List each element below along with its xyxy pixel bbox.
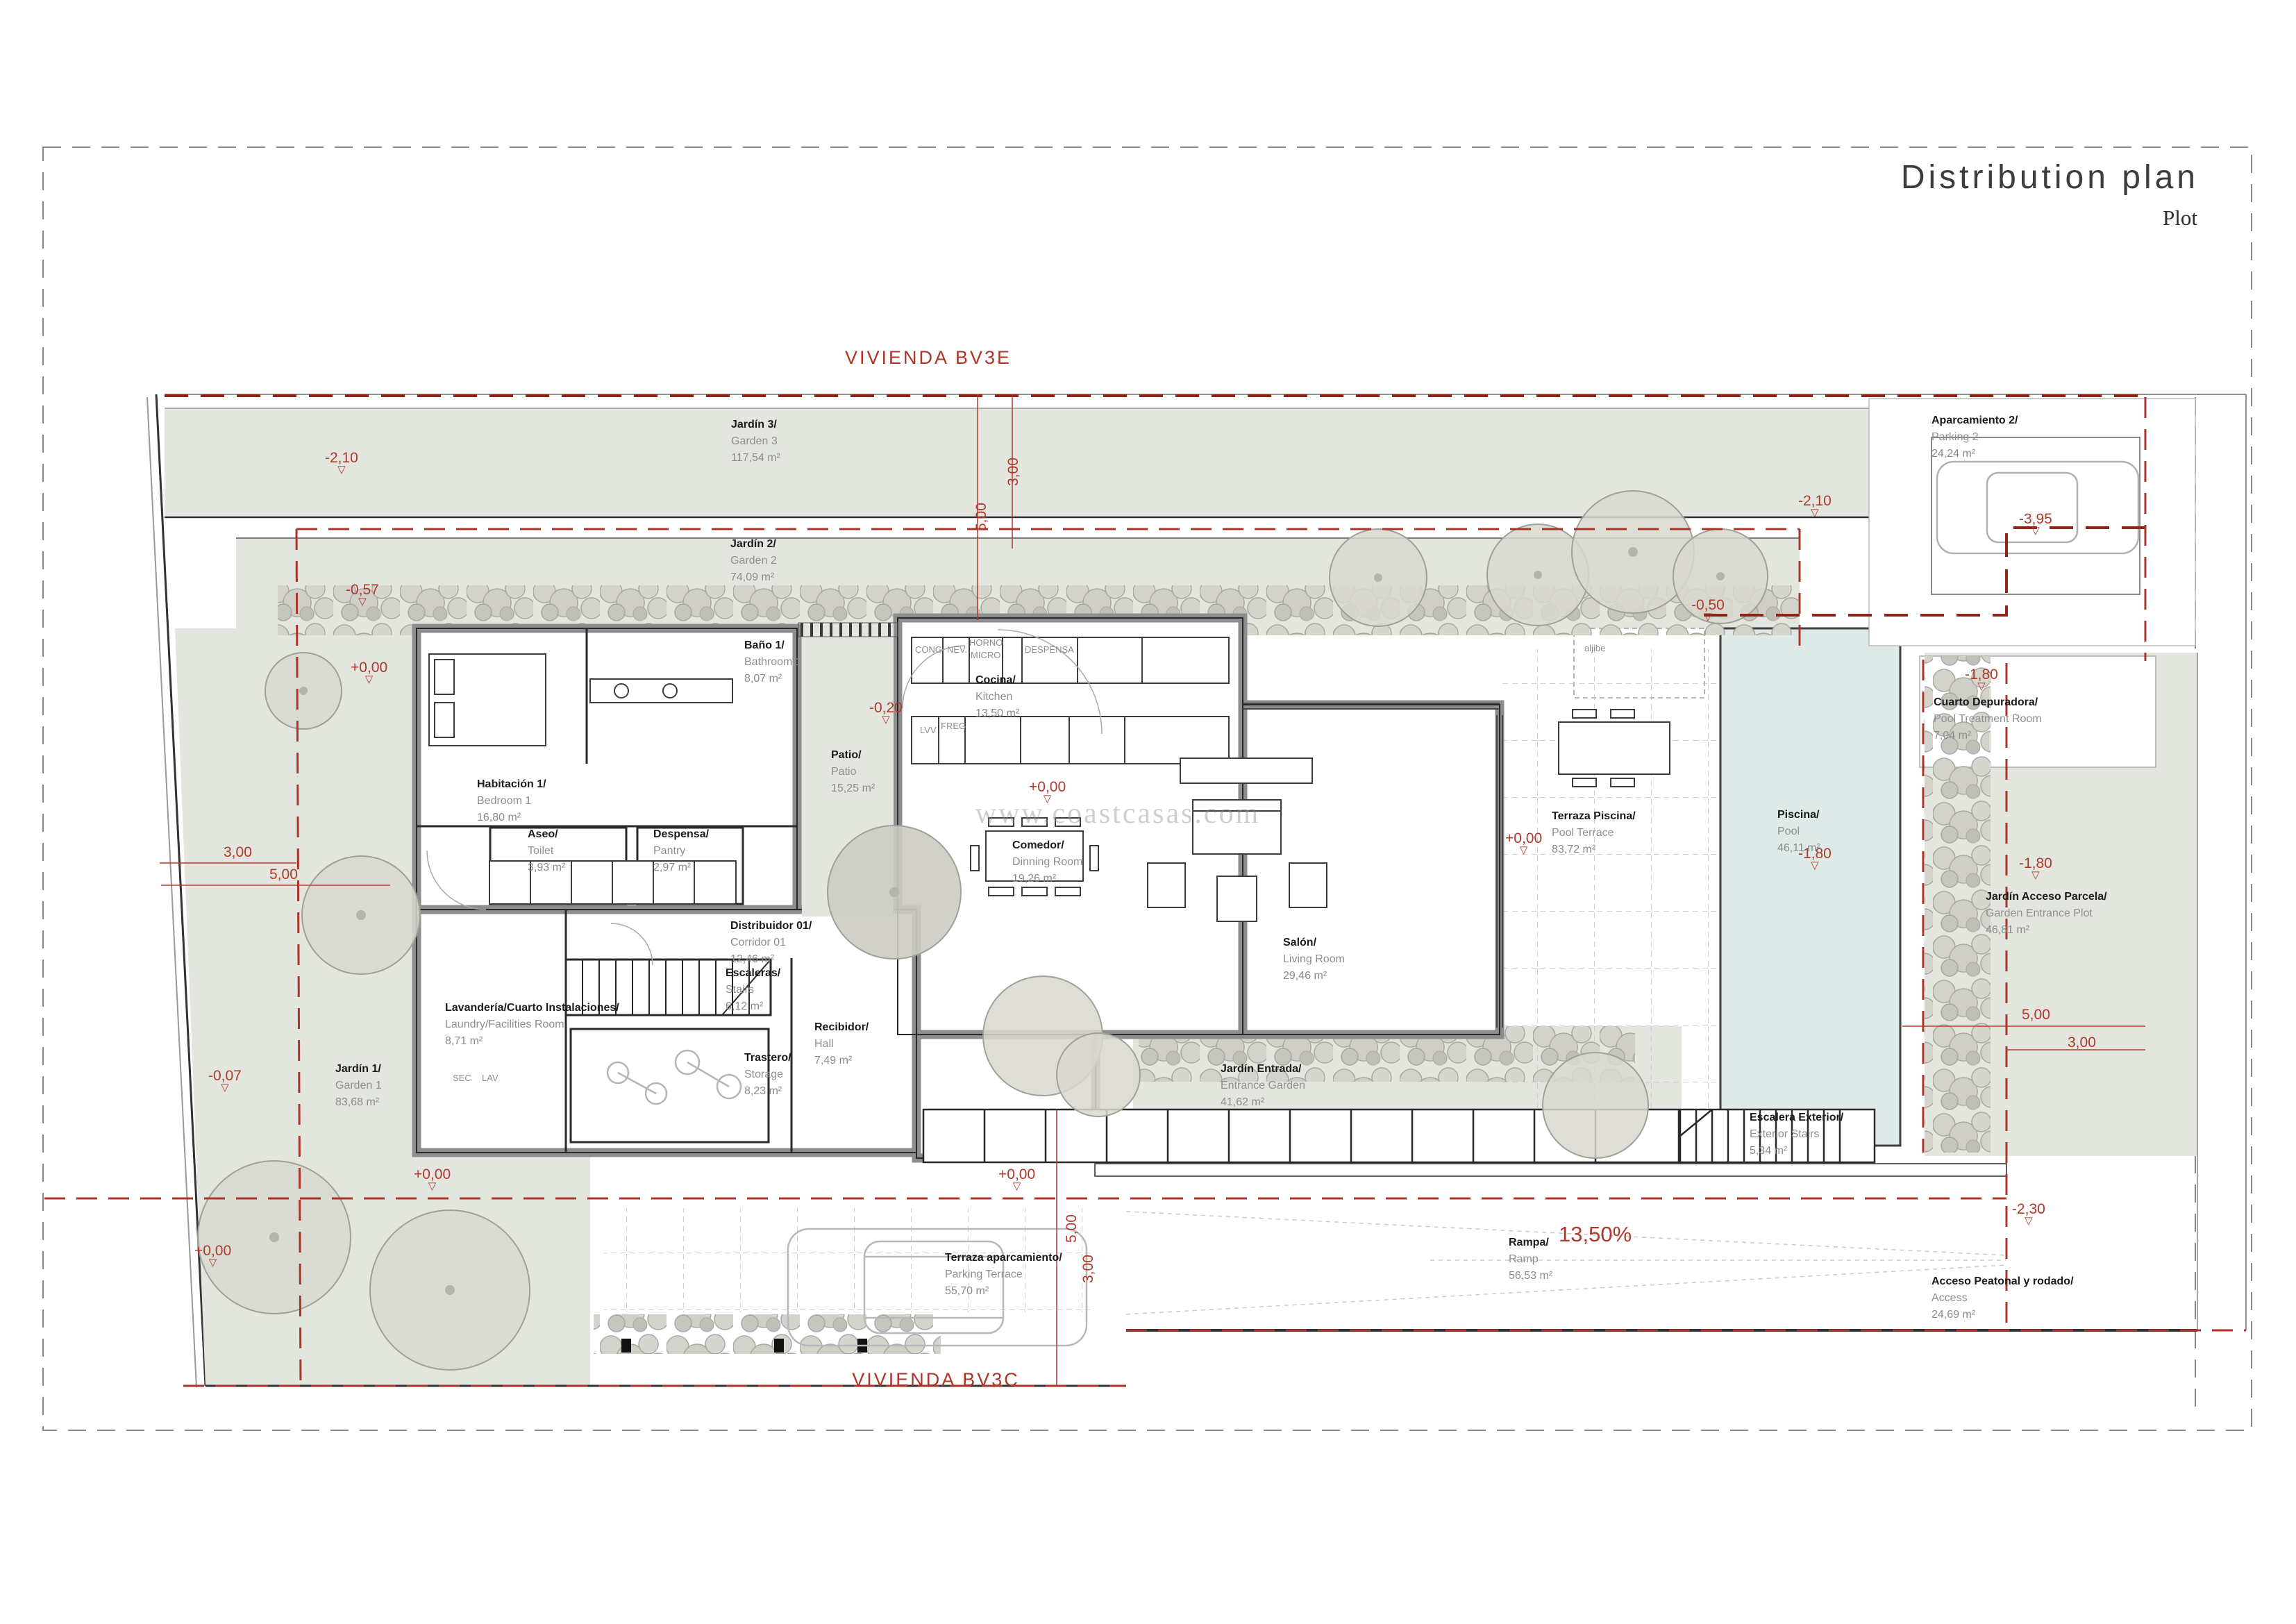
level-triangle-icon: ▽ <box>998 1183 1035 1190</box>
level-marker: +0,00▽ <box>194 1243 231 1266</box>
room-access-area: 24,69 m² <box>1932 1307 2074 1323</box>
room-parking-2-area: 24,24 m² <box>1932 446 2018 462</box>
room-label-ramp: Rampa/Ramp56,53 m² <box>1509 1234 1552 1284</box>
level-marker: +0,00▽ <box>414 1166 451 1190</box>
room-label-stairs: Escaleras/Stairs6,12 m² <box>726 965 780 1015</box>
room-ramp-en: Ramp <box>1509 1251 1552 1268</box>
annotation-cong: CONG. <box>915 644 945 655</box>
room-laundry-en: Laundry/Facilities Room <box>445 1016 619 1033</box>
room-parking-2-es: Aparcamiento 2/ <box>1932 412 2018 429</box>
room-label-pantry: Despensa/Pantry2,97 m² <box>653 826 709 876</box>
annotation-freg: FREG <box>941 721 966 731</box>
room-garden-1-en: Garden 1 <box>335 1078 382 1094</box>
room-corridor-01-es: Distribuidor 01/ <box>730 918 812 935</box>
room-hall-area: 7,49 m² <box>814 1053 869 1069</box>
room-label-pool-treatment-room: Cuarto Depuradora/Pool Treatment Room7,0… <box>1934 694 2042 744</box>
room-pool-terrace-area: 83,72 m² <box>1552 842 1636 858</box>
room-storage-area: 8,23 m² <box>744 1083 791 1100</box>
room-garden-entrance-plot-es: Jardín Acceso Parcela/ <box>1986 889 2107 905</box>
level-triangle-icon: ▽ <box>2019 528 2052 535</box>
level-triangle-icon: ▽ <box>1798 862 1832 869</box>
room-bedroom-1-es: Habitación 1/ <box>477 776 546 793</box>
level-triangle-icon: ▽ <box>346 598 379 605</box>
dimension-label: 3,00 <box>1005 458 1022 486</box>
room-entrance-garden-area: 41,62 m² <box>1221 1094 1305 1111</box>
level-marker: -0,07▽ <box>208 1068 242 1091</box>
room-patio-es: Patio/ <box>831 747 875 764</box>
room-label-garden-2: Jardín 2/Garden 274,09 m² <box>730 536 777 586</box>
level-triangle-icon: ▽ <box>194 1259 231 1266</box>
room-label-laundry: Lavandería/Cuarto Instalaciones/Laundry/… <box>445 1000 619 1050</box>
page-title: Distribution plan <box>1901 158 2199 196</box>
level-triangle-icon: ▽ <box>2019 872 2052 879</box>
room-dining-room-en: Dinning Room <box>1012 854 1082 871</box>
room-label-patio: Patio/Patio15,25 m² <box>831 747 875 797</box>
level-marker: +0,00▽ <box>1505 830 1542 854</box>
room-storage-es: Trastero/ <box>744 1050 791 1066</box>
room-kitchen-es: Cocina/ <box>975 672 1019 689</box>
room-pool-terrace-en: Pool Terrace <box>1552 825 1636 842</box>
room-pantry-es: Despensa/ <box>653 826 709 843</box>
level-triangle-icon: ▽ <box>414 1183 451 1190</box>
room-label-garden-1: Jardín 1/Garden 183,68 m² <box>335 1061 382 1111</box>
room-hall-es: Recibidor/ <box>814 1019 869 1036</box>
room-storage-en: Storage <box>744 1066 791 1083</box>
page-subtitle: Plot <box>2163 206 2197 231</box>
annotation-aljibe: aljibe <box>1584 643 1605 653</box>
room-access-es: Acceso Peatonal y rodado/ <box>1932 1273 2074 1290</box>
room-patio-area: 15,25 m² <box>831 780 875 797</box>
level-triangle-icon: ▽ <box>351 676 387 683</box>
level-triangle-icon: ▽ <box>869 717 903 723</box>
room-label-corridor-01: Distribuidor 01/Corridor 0112,46 m² <box>730 918 812 968</box>
room-label-exterior-stairs: Escalera Exterior/Exterior Stairs5,34 m² <box>1750 1110 1843 1160</box>
room-pool-es: Piscina/ <box>1777 807 1820 823</box>
level-triangle-icon: ▽ <box>208 1085 242 1091</box>
room-label-parking-2: Aparcamiento 2/Parking 224,24 m² <box>1932 412 2018 462</box>
level-triangle-icon: ▽ <box>1691 614 1725 621</box>
level-triangle-icon: ▽ <box>1965 683 1998 690</box>
room-garden-3-area: 117,54 m² <box>731 450 780 467</box>
room-label-hall: Recibidor/Hall7,49 m² <box>814 1019 869 1069</box>
room-toilet-area: 3,93 m² <box>528 860 565 876</box>
annotation-horno: HORNO <box>969 637 1003 648</box>
room-parking-terrace-area: 55,70 m² <box>945 1283 1062 1300</box>
room-living-room-en: Living Room <box>1283 951 1345 968</box>
room-label-dining-room: Comedor/Dinning Room19,26 m² <box>1012 837 1082 887</box>
dimension-label: 3,00 <box>224 844 252 861</box>
annotation-lav: LAV <box>482 1073 498 1083</box>
room-parking-2-en: Parking 2 <box>1932 429 2018 446</box>
room-garden-2-area: 74,09 m² <box>730 569 777 586</box>
room-stairs-en: Stairs <box>726 982 780 998</box>
annotation-despensa: DESPENSA <box>1025 644 1074 655</box>
room-label-parking-terrace: Terraza aparcamiento/Parking Terrace55,7… <box>945 1250 1062 1300</box>
room-garden-2-es: Jardín 2/ <box>730 536 777 553</box>
room-bathroom-1-area: 8,07 m² <box>744 671 802 687</box>
distribution-plan-page: Jardín 3/Garden 3117,54 m²Jardín 2/Garde… <box>0 0 2296 1624</box>
room-bedroom-1-area: 16,80 m² <box>477 810 546 826</box>
room-dining-room-area: 19,26 m² <box>1012 871 1082 887</box>
room-living-room-area: 29,46 m² <box>1283 968 1345 985</box>
level-marker: -0,50▽ <box>1691 597 1725 621</box>
room-label-bedroom-1: Habitación 1/Bedroom 116,80 m² <box>477 776 546 826</box>
level-marker: -1,80▽ <box>2019 855 2052 879</box>
dimension-label: 3,00 <box>2068 1035 2096 1051</box>
level-triangle-icon: ▽ <box>1798 510 1832 517</box>
room-pool-treatment-room-area: 7,04 m² <box>1934 728 2042 744</box>
dimension-label: 5,00 <box>269 867 298 883</box>
room-parking-terrace-es: Terraza aparcamiento/ <box>945 1250 1062 1266</box>
room-ramp-es: Rampa/ <box>1509 1234 1552 1251</box>
level-triangle-icon: ▽ <box>2012 1218 2045 1225</box>
room-pantry-en: Pantry <box>653 843 709 860</box>
room-pool-terrace-es: Terraza Piscina/ <box>1552 808 1636 825</box>
room-garden-1-area: 83,68 m² <box>335 1094 382 1111</box>
room-access-en: Access <box>1932 1290 2074 1307</box>
level-marker: -1,80▽ <box>1965 667 1998 690</box>
room-label-garden-entrance-plot: Jardín Acceso Parcela/Garden Entrance Pl… <box>1986 889 2107 939</box>
room-stairs-area: 6,12 m² <box>726 998 780 1015</box>
room-label-bathroom-1: Baño 1/Bathroom 18,07 m² <box>744 637 802 687</box>
room-hall-en: Hall <box>814 1036 869 1053</box>
watermark: www.coastcasas.com <box>975 797 1261 830</box>
room-pool-treatment-room-es: Cuarto Depuradora/ <box>1934 694 2042 711</box>
dimension-label: 5,00 <box>2022 1007 2050 1023</box>
room-label-living-room: Salón/Living Room29,46 m² <box>1283 935 1345 985</box>
room-bedroom-1-en: Bedroom 1 <box>477 793 546 810</box>
room-laundry-es: Lavandería/Cuarto Instalaciones/ <box>445 1000 619 1016</box>
room-laundry-area: 8,71 m² <box>445 1033 619 1050</box>
annotation-micro: MICRO <box>971 650 1000 660</box>
ramp-slope-label: 13,50% <box>1559 1222 1632 1247</box>
room-entrance-garden-en: Entrance Garden <box>1221 1078 1305 1094</box>
room-label-storage: Trastero/Storage8,23 m² <box>744 1050 791 1100</box>
room-stairs-es: Escaleras/ <box>726 965 780 982</box>
level-marker: -0,20▽ <box>869 700 903 723</box>
room-label-garden-3: Jardín 3/Garden 3117,54 m² <box>731 417 780 467</box>
room-garden-3-es: Jardín 3/ <box>731 417 780 433</box>
room-pantry-area: 2,97 m² <box>653 860 709 876</box>
level-marker: -2,10▽ <box>325 450 358 474</box>
room-garden-3-en: Garden 3 <box>731 433 780 450</box>
annotation-lvv: LVV <box>920 725 937 735</box>
room-label-pool-terrace: Terraza Piscina/Pool Terrace83,72 m² <box>1552 808 1636 858</box>
room-patio-en: Patio <box>831 764 875 780</box>
room-exterior-stairs-area: 5,34 m² <box>1750 1143 1843 1160</box>
room-garden-entrance-plot-en: Garden Entrance Plot <box>1986 905 2107 922</box>
dimension-label: 3,00 <box>1080 1255 1097 1283</box>
level-marker: +0,00▽ <box>351 660 387 683</box>
room-label-kitchen: Cocina/Kitchen13,50 m² <box>975 672 1019 722</box>
room-corridor-01-en: Corridor 01 <box>730 935 812 951</box>
room-label-access: Acceso Peatonal y rodado/Access24,69 m² <box>1932 1273 2074 1323</box>
level-triangle-icon: ▽ <box>1505 847 1542 854</box>
room-label-toilet: Aseo/Toilet3,93 m² <box>528 826 565 876</box>
room-parking-terrace-en: Parking Terrace <box>945 1266 1062 1283</box>
room-dining-room-es: Comedor/ <box>1012 837 1082 854</box>
room-exterior-stairs-es: Escalera Exterior/ <box>1750 1110 1843 1126</box>
room-kitchen-area: 13,50 m² <box>975 705 1019 722</box>
room-label-entrance-garden: Jardín Entrada/Entrance Garden41,62 m² <box>1221 1061 1305 1111</box>
room-garden-2-en: Garden 2 <box>730 553 777 569</box>
room-kitchen-en: Kitchen <box>975 689 1019 705</box>
annotation-nev: NEV. <box>947 644 967 655</box>
room-ramp-area: 56,53 m² <box>1509 1268 1552 1284</box>
room-garden-entrance-plot-area: 46,81 m² <box>1986 922 2107 939</box>
level-triangle-icon: ▽ <box>325 467 358 474</box>
level-marker: -0,57▽ <box>346 582 379 605</box>
neighbor-label-bottom: VIVIENDA BV3C <box>852 1369 1020 1391</box>
neighbor-label-top: VIVIENDA BV3E <box>845 347 1012 369</box>
room-bathroom-1-en: Bathroom 1 <box>744 654 802 671</box>
room-pool-treatment-room-en: Pool Treatment Room <box>1934 711 2042 728</box>
room-bathroom-1-es: Baño 1/ <box>744 637 802 654</box>
level-marker: -1,80▽ <box>1798 846 1832 869</box>
level-marker: -2,30▽ <box>2012 1201 2045 1225</box>
room-garden-1-es: Jardín 1/ <box>335 1061 382 1078</box>
room-living-room-es: Salón/ <box>1283 935 1345 951</box>
dimension-label: 5,00 <box>1064 1214 1080 1243</box>
level-marker: -2,10▽ <box>1798 493 1832 517</box>
room-toilet-en: Toilet <box>528 843 565 860</box>
room-entrance-garden-es: Jardín Entrada/ <box>1221 1061 1305 1078</box>
room-pool-en: Pool <box>1777 823 1820 840</box>
level-marker: +0,00▽ <box>998 1166 1035 1190</box>
dimension-label: 5,00 <box>973 503 990 531</box>
annotation-sec: SEC <box>453 1073 471 1083</box>
room-exterior-stairs-en: Exterior Stairs <box>1750 1126 1843 1143</box>
room-toilet-es: Aseo/ <box>528 826 565 843</box>
level-marker: -3,95▽ <box>2019 511 2052 535</box>
